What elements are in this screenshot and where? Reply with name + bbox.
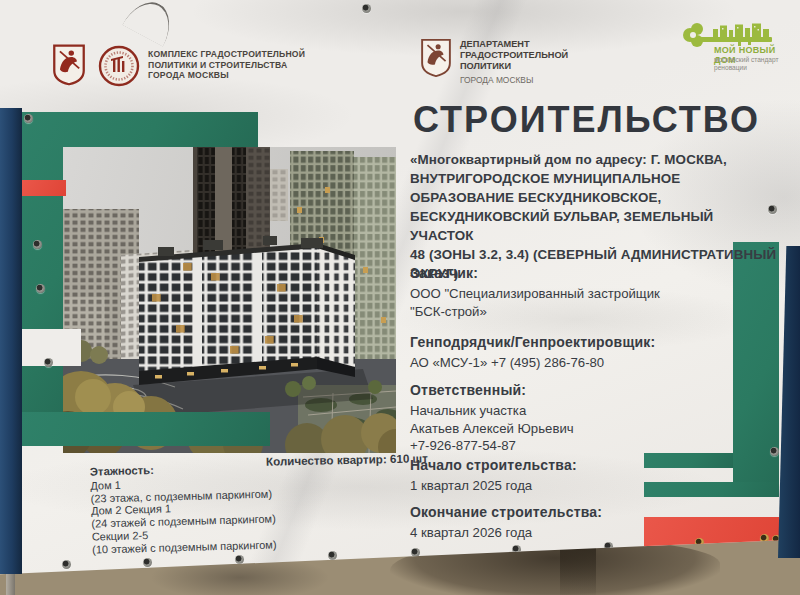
my-new-home-sublabel: московский стандарт реновации bbox=[714, 56, 779, 71]
section-customer: Заказчик: ООО "Специализированный застро… bbox=[410, 265, 740, 320]
apartments-count: Количество квартир: 610 шт bbox=[266, 451, 428, 467]
grommet bbox=[328, 551, 337, 560]
section-label: Начало строительства: bbox=[410, 457, 740, 473]
floors-list: Дом 1 (23 этажа, с подземным паркингом) … bbox=[90, 472, 352, 555]
section-value: Начальник участка Акатьев Алексей Юрьеви… bbox=[410, 402, 740, 455]
building-render bbox=[63, 147, 396, 453]
apartments-value: 610 шт bbox=[390, 451, 428, 465]
green-band-top bbox=[22, 112, 258, 148]
section-responsible: Ответственный: Начальник участка Акатьев… bbox=[410, 382, 740, 455]
red-stripe-left bbox=[22, 180, 66, 196]
grommet bbox=[62, 560, 71, 569]
grommet bbox=[770, 447, 779, 456]
section-end-date: Окончание строительства: 4 квартал 2026 … bbox=[410, 504, 740, 542]
grommet bbox=[44, 358, 53, 367]
wet-stain bbox=[560, 548, 596, 595]
banner: КОМПЛЕКС ГРАДОСТРОИТЕЛЬНОЙ ПОЛИТИКИ И СТ… bbox=[0, 0, 800, 580]
section-label: Окончание строительства: bbox=[410, 504, 740, 520]
section-label: Ответственный: bbox=[410, 382, 740, 398]
section-value: 1 квартал 2025 года bbox=[410, 477, 740, 495]
section-label: Генподрядчик/Генпроектировщик: bbox=[410, 334, 750, 350]
grommet bbox=[362, 4, 371, 13]
moscow-coat-of-arms-icon bbox=[52, 42, 86, 88]
banner-title: СТРОИТЕЛЬСТВО bbox=[413, 99, 760, 141]
project-address: «Многоквартирный дом по адресу: Г. МОСКВ… bbox=[410, 150, 780, 283]
green-strip-left bbox=[22, 112, 64, 446]
section-value: ООО "Специализированный застройщик "БСК-… bbox=[410, 285, 740, 320]
section-value: АО «МСУ-1» +7 (495) 286-76-80 bbox=[410, 354, 750, 372]
fence-frame-left bbox=[0, 108, 22, 574]
floors-block: Этажность: Дом 1 (23 этажа, с подземным … bbox=[90, 458, 352, 555]
wire-crease bbox=[122, 0, 180, 47]
org-complex-label: КОМПЛЕКС ГРАДОСТРОИТЕЛЬНОЙ ПОЛИТИКИ И СТ… bbox=[148, 49, 305, 81]
grommet bbox=[36, 284, 45, 293]
grommet bbox=[768, 205, 777, 214]
grommet bbox=[411, 548, 420, 557]
org-department-sublabel: ГОРОДА МОСКВЫ bbox=[460, 75, 533, 85]
grommet bbox=[24, 114, 33, 123]
section-label: Заказчик: bbox=[410, 265, 740, 281]
stroycomplex-seal-icon bbox=[98, 45, 140, 87]
section-start-date: Начало строительства: 1 квартал 2025 год… bbox=[410, 457, 740, 495]
org-department-label: ДЕПАРТАМЕНТ ГРАДОСТРОИТЕЛЬНОЙ ПОЛИТИКИ bbox=[460, 39, 568, 72]
grommet bbox=[143, 558, 152, 567]
green-band-bottom bbox=[22, 412, 270, 446]
grommet bbox=[235, 555, 244, 564]
grommet bbox=[33, 240, 42, 249]
construction-banner-photo: КОМПЛЕКС ГРАДОСТРОИТЕЛЬНОЙ ПОЛИТИКИ И СТ… bbox=[0, 0, 800, 595]
apartments-label: Количество квартир: bbox=[266, 452, 387, 468]
moscow-coat-of-arms-icon bbox=[420, 36, 452, 80]
section-contractor: Генподрядчик/Генпроектировщик: АО «МСУ-1… bbox=[410, 334, 750, 372]
section-value: 4 квартал 2026 года bbox=[410, 524, 740, 542]
